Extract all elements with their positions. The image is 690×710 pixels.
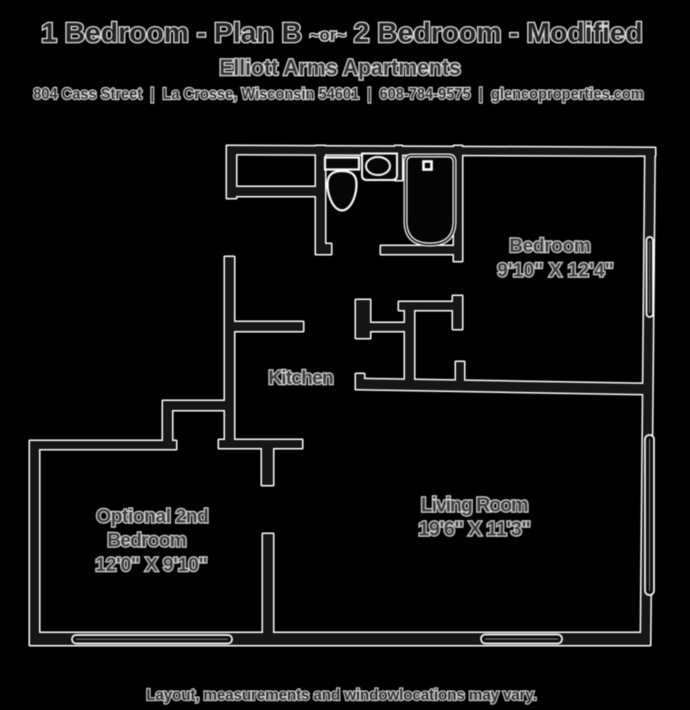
svg-text:12'0" X 9'10": 12'0" X 9'10" [95,555,208,576]
svg-text:Elliott Arms Apartments: Elliott Arms Apartments [219,55,461,80]
svg-text:Kitchen: Kitchen [268,367,334,389]
svg-text:19'6" X 11'3": 19'6" X 11'3" [418,519,531,541]
svg-text:Living Room: Living Room [421,495,529,517]
svg-text:804 Cass Street | La Crosse,: 804 Cass Street | La Crosse, Wisconsin 5… [33,86,644,103]
svg-text:Optional 2nd: Optional 2nd [96,506,209,527]
svg-text:Bedroom: Bedroom [509,236,591,257]
svg-text:Layout, measurements and windo: Layout, measurements and windowlocations… [146,687,537,704]
svg-text:9'10" X 12'4": 9'10" X 12'4" [497,261,614,282]
svg-text:Bedroom: Bedroom [107,531,187,552]
